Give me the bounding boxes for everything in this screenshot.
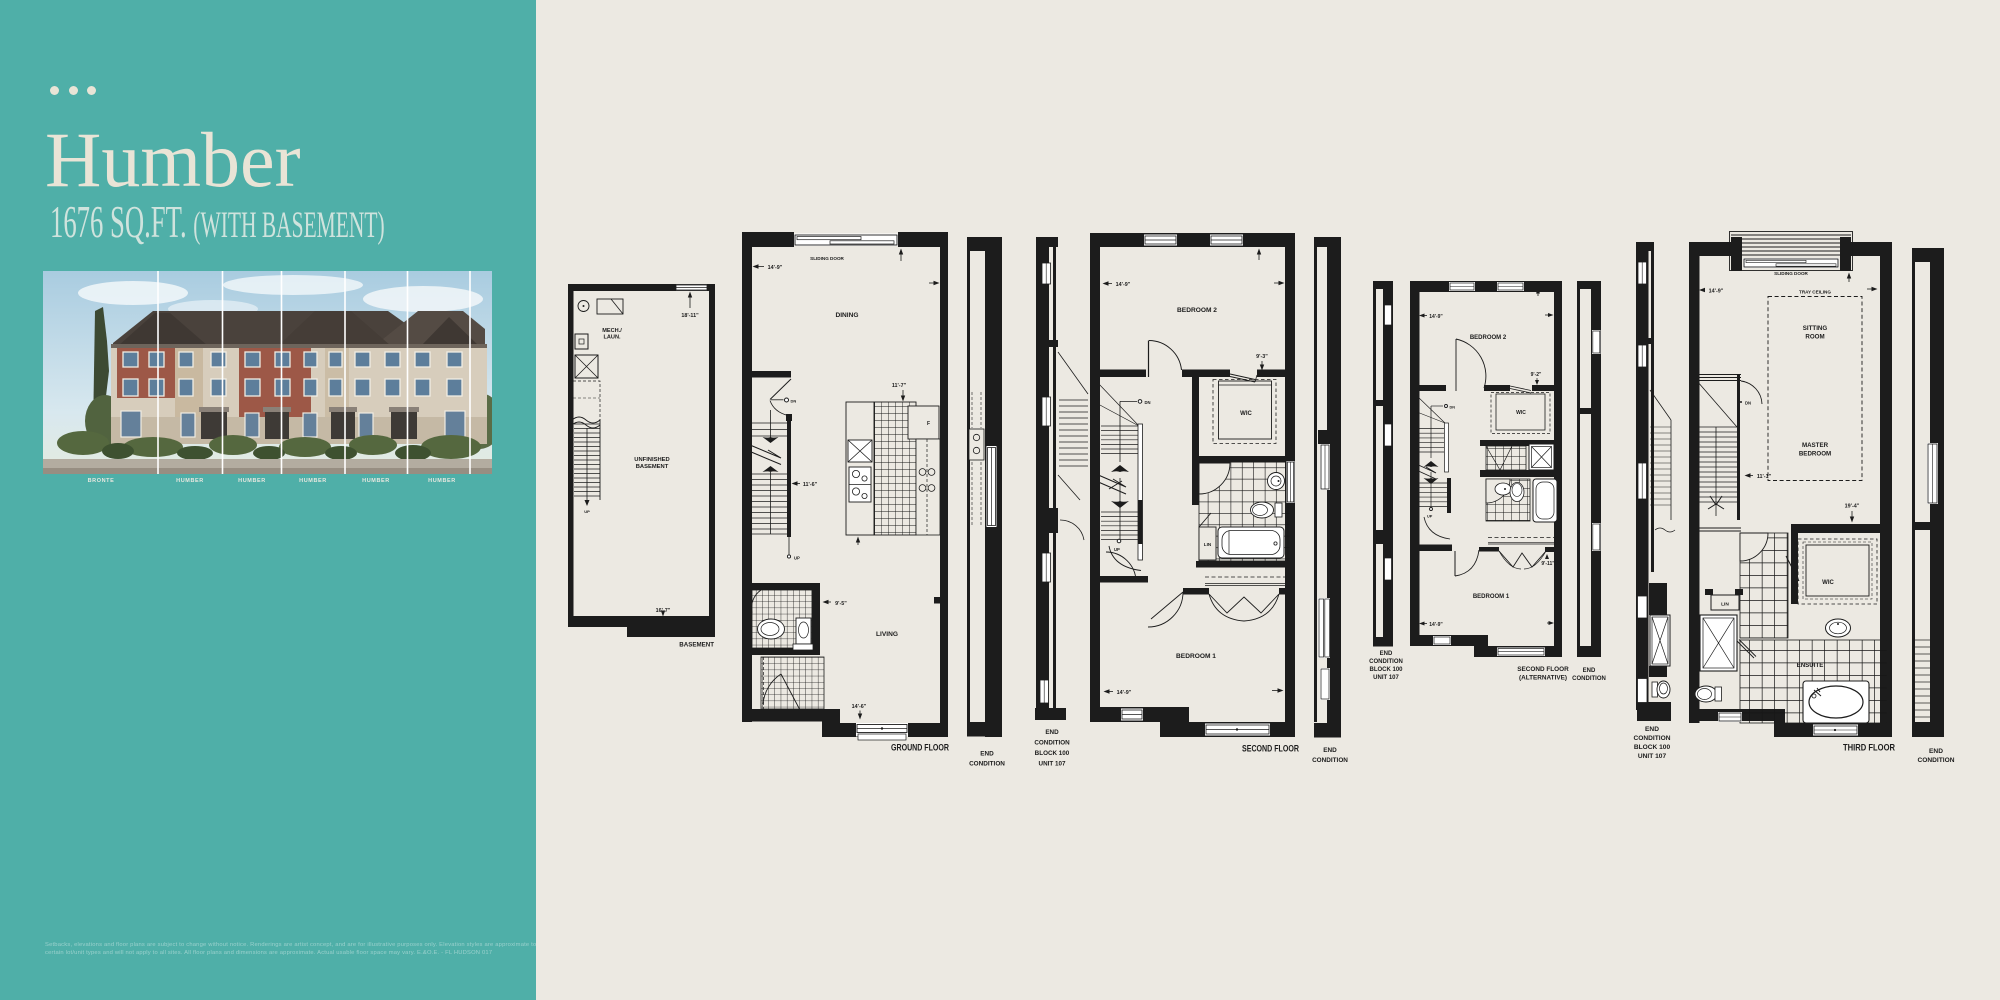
- svg-text:END: END: [980, 751, 994, 758]
- svg-text:CONDITION: CONDITION: [1572, 676, 1606, 682]
- svg-text:9'-2": 9'-2": [1531, 372, 1542, 378]
- svg-text:SLIDING DOOR: SLIDING DOOR: [1774, 271, 1808, 276]
- svg-text:UNIT 107: UNIT 107: [1039, 761, 1066, 768]
- svg-text:LIN: LIN: [1721, 602, 1729, 608]
- svg-text:SITTING: SITTING: [1803, 325, 1828, 332]
- svg-text:14'-6": 14'-6": [852, 704, 867, 710]
- svg-text:WIC: WIC: [1516, 410, 1526, 416]
- svg-text:END: END: [1045, 729, 1059, 736]
- svg-text:BEDROOM 2: BEDROOM 2: [1177, 307, 1217, 314]
- svg-text:UP: UP: [1114, 547, 1120, 552]
- svg-text:ENSUITE: ENSUITE: [1797, 662, 1824, 669]
- svg-text:9'-3": 9'-3": [1256, 354, 1268, 360]
- svg-text:11'-6": 11'-6": [803, 482, 818, 488]
- svg-text:UNIT 107: UNIT 107: [1638, 753, 1667, 760]
- svg-text:CONDITION: CONDITION: [1369, 659, 1403, 665]
- svg-text:DINING: DINING: [835, 312, 858, 319]
- svg-text:WIC: WIC: [1240, 411, 1252, 417]
- svg-text:BASEMENT: BASEMENT: [636, 464, 669, 470]
- svg-text:14'-9": 14'-9": [1709, 289, 1724, 295]
- svg-text:DN: DN: [1145, 400, 1151, 405]
- svg-text:BLOCK 100: BLOCK 100: [1634, 744, 1671, 751]
- svg-text:GROUND FLOOR: GROUND FLOOR: [891, 743, 949, 754]
- svg-text:END: END: [1929, 748, 1943, 755]
- svg-text:END: END: [1323, 747, 1337, 754]
- svg-text:WIC: WIC: [1822, 580, 1834, 586]
- svg-text:F: F: [927, 421, 930, 427]
- svg-text:SLIDING DOOR: SLIDING DOOR: [810, 256, 844, 261]
- svg-text:BLOCK 100: BLOCK 100: [1035, 750, 1070, 757]
- svg-text:CONDITION: CONDITION: [969, 761, 1005, 768]
- svg-text:BEDROOM 2: BEDROOM 2: [1470, 335, 1507, 341]
- svg-text:TRAY CEILING: TRAY CEILING: [1799, 290, 1831, 295]
- svg-text:18'-11": 18'-11": [681, 313, 699, 319]
- svg-text:CONDITION: CONDITION: [1034, 740, 1070, 747]
- svg-text:ROOM: ROOM: [1805, 334, 1824, 341]
- svg-text:DN: DN: [1745, 401, 1751, 406]
- svg-text:UP: UP: [1427, 515, 1433, 519]
- svg-text:END: END: [1645, 726, 1659, 733]
- svg-text:(ALTERNATIVE): (ALTERNATIVE): [1519, 675, 1567, 682]
- svg-text:14'-9": 14'-9": [768, 265, 783, 271]
- svg-text:BEDROOM: BEDROOM: [1799, 451, 1831, 458]
- svg-text:CONDITION: CONDITION: [1918, 757, 1955, 764]
- svg-text:THIRD FLOOR: THIRD FLOOR: [1843, 743, 1895, 754]
- svg-text:11'-1": 11'-1": [1757, 474, 1772, 480]
- svg-text:14'-9": 14'-9": [1116, 282, 1131, 288]
- svg-text:LIN: LIN: [1204, 542, 1212, 547]
- svg-text:14'-9": 14'-9": [1429, 314, 1443, 320]
- svg-text:MASTER: MASTER: [1802, 442, 1829, 449]
- svg-text:BEDROOM 1: BEDROOM 1: [1473, 594, 1510, 600]
- svg-text:UP: UP: [584, 509, 590, 514]
- svg-text:LAUN.: LAUN.: [603, 335, 621, 341]
- svg-text:CONDITION: CONDITION: [1312, 757, 1348, 764]
- svg-text:19'-4": 19'-4": [1845, 504, 1860, 510]
- svg-text:BASEMENT: BASEMENT: [679, 642, 714, 649]
- svg-text:9'-5": 9'-5": [835, 601, 847, 607]
- svg-text:CONDITION: CONDITION: [1634, 735, 1671, 742]
- svg-text:SECOND FLOOR: SECOND FLOOR: [1517, 666, 1569, 673]
- svg-text:DN: DN: [791, 398, 797, 403]
- svg-text:UNFINISHED: UNFINISHED: [634, 457, 669, 463]
- svg-text:UNIT 107: UNIT 107: [1373, 675, 1399, 681]
- svg-text:END: END: [1380, 651, 1393, 657]
- svg-text:END: END: [1583, 668, 1596, 674]
- svg-text:DN: DN: [1450, 405, 1456, 409]
- svg-text:MECH./: MECH./: [602, 328, 622, 334]
- svg-text:11'-7": 11'-7": [892, 383, 907, 389]
- svg-text:14'-9": 14'-9": [1117, 690, 1132, 696]
- svg-text:14'-9": 14'-9": [1429, 622, 1443, 628]
- svg-text:9'-11": 9'-11": [1541, 561, 1555, 567]
- svg-text:BEDROOM 1: BEDROOM 1: [1176, 653, 1216, 660]
- svg-text:BLOCK 100: BLOCK 100: [1369, 667, 1403, 673]
- svg-text:SECOND FLOOR: SECOND FLOOR: [1242, 744, 1299, 755]
- svg-text:UP: UP: [794, 556, 800, 561]
- svg-text:LIVING: LIVING: [876, 631, 898, 638]
